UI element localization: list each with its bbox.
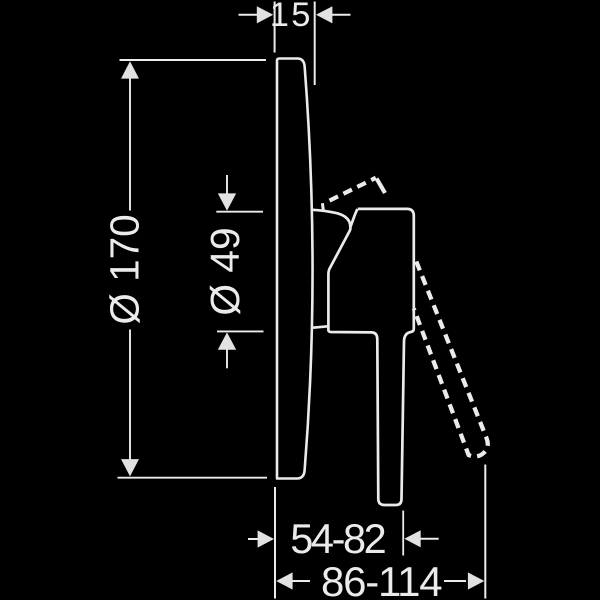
svg-text:5: 5 [291,0,310,34]
svg-text:Ø 49: Ø 49 [202,227,248,315]
svg-text:Ø 170: Ø 170 [101,214,147,324]
svg-text:1: 1 [270,0,289,34]
svg-text:54-82: 54-82 [290,515,384,562]
svg-text:86-114: 86-114 [321,558,442,600]
